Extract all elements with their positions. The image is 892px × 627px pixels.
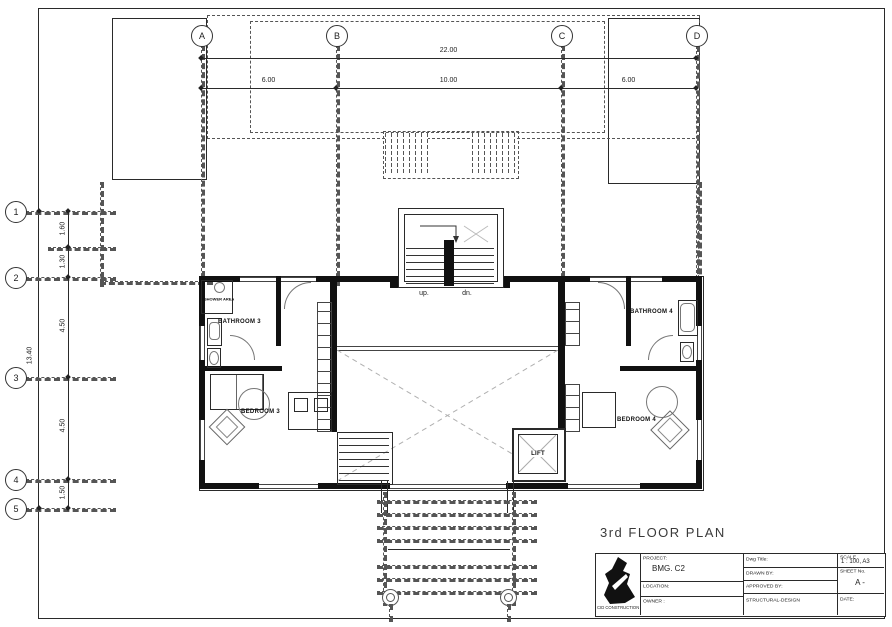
dwg-title-label-text: Dwg Title:: [746, 556, 768, 562]
project-label-text: PROJECT:: [643, 555, 667, 561]
dim-line-top-overall: [201, 58, 696, 59]
grid-line-3: [26, 377, 116, 381]
wall: [500, 276, 590, 282]
sheet-no-label-text: SHEET No.: [840, 568, 865, 574]
toilet-icon: [214, 282, 225, 293]
drawn-by-label: DRAWN BY:: [746, 570, 796, 580]
grid-bubble-c-label: C: [559, 31, 566, 41]
grid-bubble-d-label: D: [694, 31, 701, 41]
column-marker-inner: [504, 593, 513, 602]
titleblock-row-line: [743, 593, 837, 594]
grid-bubble-2: 2: [5, 267, 27, 289]
titleblock-row-line: [837, 593, 884, 594]
table-left: [238, 388, 270, 420]
company-name: CID CONSTRUCTION: [597, 606, 641, 613]
lift-label-text: LIFT: [530, 451, 546, 457]
owner-label: OWNER :: [643, 598, 683, 608]
dim-top-seg1: 6.00: [201, 77, 336, 84]
dim-line-left-segments: [68, 211, 69, 508]
drawing-sheet: A B C D 22.00 6.00 10.00 6.00 1 2 3 4 5 …: [0, 0, 892, 627]
wall: [696, 460, 702, 489]
stair-dn-label: dn.: [456, 290, 478, 297]
grid-line-4: [26, 479, 116, 483]
titleblock-row-line: [640, 581, 743, 582]
titleblock-divider: [743, 553, 744, 615]
owner-label-text: OWNER :: [643, 598, 665, 604]
bedroom3-label: BEDROOM 3: [241, 409, 280, 415]
grid-bubble-1-label: 1: [13, 207, 18, 217]
lift-label: LIFT: [512, 428, 564, 480]
grid-bubble-5: 5: [5, 498, 27, 520]
window: [200, 326, 205, 360]
grid-bubble-1: 1: [5, 201, 27, 223]
grid-line-d: [696, 46, 700, 283]
balcony-edge: [388, 549, 510, 550]
date-label-text: DATE:: [840, 596, 854, 602]
grid-bubble-a-label: A: [199, 31, 205, 41]
chair-right-inner: [657, 417, 682, 442]
desk-left-item: [314, 398, 328, 412]
desk-left-item: [294, 398, 308, 412]
shower-area-label: SHOWER AREA: [204, 297, 234, 302]
stair-stringer: [444, 240, 454, 286]
balcony-door: [390, 484, 506, 489]
roof-edge-left: [100, 182, 104, 287]
company-logo: [602, 556, 636, 604]
wall: [640, 483, 702, 489]
dim-left-seg4: 4.50: [60, 415, 67, 437]
dim-top-seg3: 6.00: [561, 77, 696, 84]
tub-right-basin: [680, 303, 695, 332]
drawn-by-label-text: DRAWN BY:: [746, 570, 774, 576]
desk-right: [582, 392, 616, 428]
grid-bubble-5-label: 5: [13, 504, 18, 514]
cabinet-strip-east-lower: [565, 384, 580, 432]
grid-bubble-d: D: [686, 25, 708, 47]
balcony-wall: [387, 481, 388, 513]
grid-bubble-3: 3: [5, 367, 27, 389]
company-name-text: CID CONSTRUCTION: [597, 606, 623, 610]
roof-hatch-right: [472, 133, 515, 175]
wall-void-east: [558, 276, 565, 432]
column-marker-inner: [386, 593, 395, 602]
plan-title: 3rd FLOOR PLAN: [600, 525, 726, 540]
scale-value: 1 : 100, A3: [841, 559, 870, 565]
titleblock-row-line: [743, 567, 837, 568]
date-label: DATE:: [840, 596, 866, 606]
wall: [199, 460, 205, 489]
wall-bathroom4: [620, 366, 702, 371]
dim-top-seg2: 10.00: [336, 77, 561, 84]
titleblock-row-line: [743, 580, 837, 581]
balcony-side: [512, 492, 516, 606]
wall: [506, 483, 568, 489]
location-label-text: LOCATION:: [643, 583, 669, 589]
roof-edge-bottom-left: [100, 281, 213, 285]
window: [568, 484, 640, 489]
window: [259, 484, 318, 489]
grid-line-2: [26, 277, 116, 281]
dim-left-seg3: 4.50: [60, 315, 67, 337]
dim-top-overall: 22.00: [201, 47, 696, 54]
titleblock-row-line: [640, 596, 743, 597]
wall-stair-nub: [390, 276, 398, 288]
dim-line-top-segments: [201, 88, 696, 89]
project-value: BMG. C2: [652, 564, 685, 573]
bedroom4-label: BEDROOM 4: [617, 417, 656, 423]
foyer-stair-treads: [339, 436, 389, 481]
bathroom3-label: BATHROOM 3: [218, 319, 261, 325]
window: [697, 420, 702, 460]
approved-by-label: APPROVED BY:: [746, 583, 813, 593]
grid-bubble-a: A: [191, 25, 213, 47]
dim-left-seg5: 1.50: [60, 482, 67, 504]
balcony-side-ext: [507, 604, 511, 622]
toilet-right-bowl: [682, 345, 692, 359]
cabinet-strip-east-upper: [565, 302, 580, 346]
grid-bubble-b-label: B: [334, 31, 340, 41]
approved-by-label-text: APPROVED BY:: [746, 583, 783, 589]
dim-left-seg1: 1.60: [60, 218, 67, 240]
wall: [199, 483, 259, 489]
stair-direction-arrow: [412, 218, 492, 246]
balcony-wall: [507, 481, 508, 513]
structural-label-text: STRUCTURAL-DESIGN: [746, 597, 800, 603]
grid-line-mid: [48, 247, 116, 251]
roof-hatch-left: [385, 133, 428, 175]
wall: [316, 276, 400, 282]
window: [200, 420, 205, 460]
structural-label: STRUCTURAL-DESIGN: [746, 597, 844, 607]
wall-bathroom3: [276, 276, 281, 346]
dwg-title-label: Dwg Title:: [746, 556, 786, 566]
grid-bubble-2-label: 2: [13, 273, 18, 283]
bathroom4-label: BATHROOM 4: [630, 309, 673, 315]
sheet-no-value: A -: [840, 578, 880, 587]
grid-bubble-4-label: 4: [13, 475, 18, 485]
dim-left-overall: 13.40: [27, 343, 34, 369]
chair-left-inner: [216, 416, 239, 439]
grid-bubble-c: C: [551, 25, 573, 47]
balcony-wall: [381, 481, 382, 513]
toilet-left-bowl: [209, 351, 219, 365]
balcony-side-ext: [389, 604, 393, 622]
stair-up-label: up.: [413, 290, 435, 297]
sheet-no-label: SHEET No.: [840, 568, 886, 578]
grid-bubble-4: 4: [5, 469, 27, 491]
location-label: LOCATION:: [643, 583, 691, 593]
dim-left-seg2: 1.30: [60, 251, 67, 273]
grid-bubble-3-label: 3: [13, 373, 18, 383]
grid-bubble-b: B: [326, 25, 348, 47]
